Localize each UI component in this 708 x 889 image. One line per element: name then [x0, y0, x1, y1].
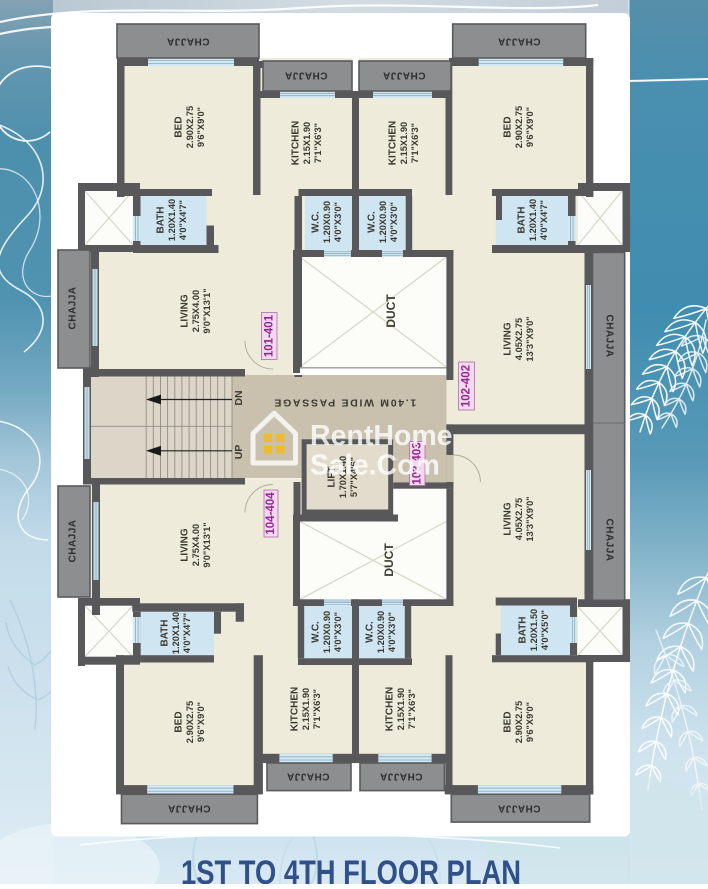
- svg-text:DUCT: DUCT: [382, 543, 396, 577]
- svg-text:101-401: 101-401: [263, 314, 275, 357]
- svg-text:UP: UP: [233, 445, 245, 460]
- svg-text:7'1"X6'3": 7'1"X6'3": [407, 689, 417, 729]
- svg-text:CHAJJA: CHAJJA: [284, 70, 327, 81]
- svg-text:CHAJJA: CHAJJA: [497, 803, 540, 814]
- svg-text:9'6"X9'0": 9'6"X9'0": [196, 107, 206, 147]
- svg-text:BED: BED: [503, 116, 514, 137]
- svg-text:1.20X0.90: 1.20X0.90: [378, 201, 388, 243]
- svg-text:104-404: 104-404: [265, 492, 277, 535]
- svg-text:CHAJJA: CHAJJA: [166, 36, 209, 47]
- svg-text:W.C.: W.C.: [311, 621, 322, 643]
- svg-text:4'0"X3'0": 4'0"X3'0": [389, 202, 399, 242]
- svg-text:2.90X2.75: 2.90X2.75: [185, 701, 195, 743]
- svg-text:1.20X0.90: 1.20X0.90: [322, 201, 332, 243]
- svg-text:1.20X0.90: 1.20X0.90: [376, 611, 386, 653]
- svg-text:4.05X2.75: 4.05X2.75: [514, 318, 524, 360]
- svg-text:1.20X1.40: 1.20X1.40: [171, 612, 181, 654]
- svg-text:4'0"X4'7": 4'0"X4'7": [539, 200, 549, 240]
- svg-text:9'0"X13'1": 9'0"X13'1": [202, 522, 212, 567]
- svg-text:KITCHEN: KITCHEN: [290, 687, 301, 731]
- svg-text:2.90X2.75: 2.90X2.75: [514, 701, 524, 743]
- svg-text:LIVING: LIVING: [180, 294, 191, 328]
- svg-text:LIVING: LIVING: [503, 502, 514, 536]
- svg-text:CHAJJA: CHAJJA: [382, 70, 425, 81]
- svg-text:2.15X1.90: 2.15X1.90: [302, 122, 312, 164]
- svg-text:CHAJJA: CHAJJA: [68, 519, 79, 562]
- svg-text:BATH: BATH: [160, 619, 171, 646]
- svg-text:W.C.: W.C.: [365, 621, 376, 643]
- svg-text:BED: BED: [503, 711, 514, 732]
- svg-text:CHAJJA: CHAJJA: [167, 803, 210, 814]
- svg-text:7'1"X6'3": 7'1"X6'3": [312, 689, 322, 729]
- svg-text:KITCHEN: KITCHEN: [291, 121, 302, 165]
- svg-text:4'0"X3'0": 4'0"X3'0": [333, 202, 343, 242]
- svg-text:9'0"X13'1": 9'0"X13'1": [202, 288, 212, 333]
- svg-text:4.05X2.75: 4.05X2.75: [514, 498, 524, 540]
- svg-text:DUCT: DUCT: [384, 294, 398, 328]
- svg-text:W.C.: W.C.: [311, 211, 322, 233]
- svg-text:1.20X1.50: 1.20X1.50: [529, 609, 539, 651]
- svg-text:BED: BED: [174, 711, 185, 732]
- svg-text:2.15X1.90: 2.15X1.90: [399, 122, 409, 164]
- svg-text:DN: DN: [233, 390, 245, 405]
- svg-text:CHAJJA: CHAJJA: [497, 36, 540, 47]
- svg-text:2.90X2.75: 2.90X2.75: [514, 106, 524, 148]
- svg-text:BATH: BATH: [518, 616, 529, 643]
- svg-text:2.75X4.00: 2.75X4.00: [191, 290, 201, 332]
- svg-text:CHAJJA: CHAJJA: [379, 771, 422, 782]
- svg-text:9'6"X9'0": 9'6"X9'0": [525, 702, 535, 742]
- svg-text:2.15X1.90: 2.15X1.90: [396, 688, 406, 730]
- svg-text:LIVING: LIVING: [503, 322, 514, 356]
- svg-text:7'1"X6'3": 7'1"X6'3": [313, 123, 323, 163]
- svg-text:CHAJJA: CHAJJA: [604, 518, 615, 561]
- svg-text:1.20X1.40: 1.20X1.40: [528, 199, 538, 241]
- svg-text:9'6"X9'0": 9'6"X9'0": [525, 107, 535, 147]
- svg-text:W.C.: W.C.: [367, 211, 378, 233]
- svg-text:KITCHEN: KITCHEN: [388, 121, 399, 165]
- svg-text:2.90X2.75: 2.90X2.75: [185, 106, 195, 148]
- svg-text:Sale.Com: Sale.Com: [310, 450, 440, 482]
- svg-text:1.20X0.90: 1.20X0.90: [322, 611, 332, 653]
- svg-text:13'3"X9'0": 13'3"X9'0": [525, 496, 535, 541]
- svg-text:7'1"X6'3": 7'1"X6'3": [410, 123, 420, 163]
- svg-text:BED: BED: [174, 116, 185, 137]
- svg-text:2.15X1.90: 2.15X1.90: [301, 688, 311, 730]
- svg-text:13'3"X9'0": 13'3"X9'0": [525, 316, 535, 361]
- svg-text:CHAJJA: CHAJJA: [286, 771, 329, 782]
- svg-text:4'0"X4'7": 4'0"X4'7": [178, 200, 188, 240]
- svg-text:1ST TO 4TH FLOOR PLAN: 1ST TO 4TH FLOOR PLAN: [181, 854, 521, 884]
- svg-text:LIVING: LIVING: [180, 528, 191, 562]
- svg-text:RentHome: RentHome: [310, 420, 453, 452]
- svg-text:CHAJJA: CHAJJA: [604, 314, 615, 357]
- svg-text:4'0"X3'0": 4'0"X3'0": [333, 612, 343, 652]
- svg-text:1.20X1.40: 1.20X1.40: [167, 199, 177, 241]
- svg-text:BATH: BATH: [156, 206, 167, 233]
- svg-text:2.75X4.00: 2.75X4.00: [191, 524, 201, 566]
- svg-text:BATH: BATH: [517, 206, 528, 233]
- svg-text:4'0"X5'0": 4'0"X5'0": [540, 610, 550, 650]
- svg-text:4'0"X4'7": 4'0"X4'7": [182, 613, 192, 653]
- svg-text:4'0"X3'0": 4'0"X3'0": [387, 612, 397, 652]
- svg-text:9'6"X9'0": 9'6"X9'0": [196, 702, 206, 742]
- svg-text:CHAJJA: CHAJJA: [68, 286, 79, 329]
- svg-text:102-402: 102-402: [461, 365, 473, 407]
- svg-text:1.40M WIDE PASSAGE: 1.40M WIDE PASSAGE: [273, 397, 417, 409]
- svg-text:KITCHEN: KITCHEN: [385, 687, 396, 731]
